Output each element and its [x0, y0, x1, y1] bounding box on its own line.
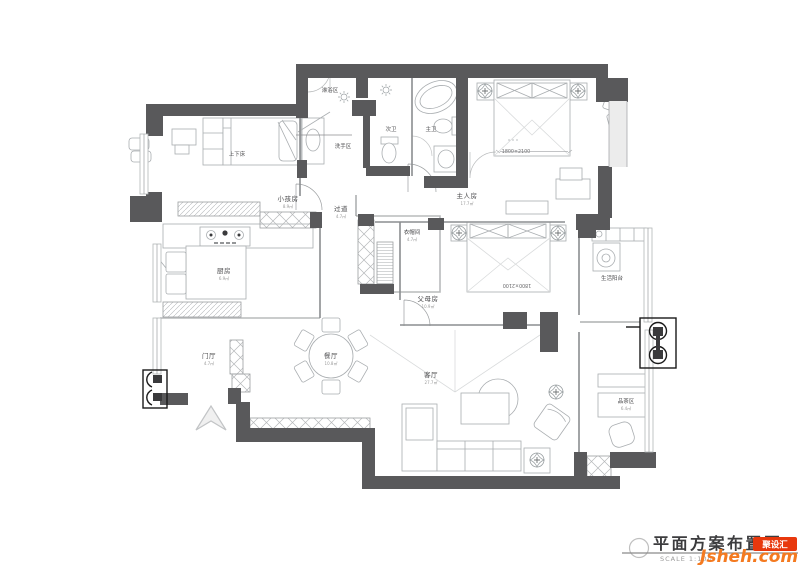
tea-chair	[607, 420, 636, 449]
wardrobe-closet	[358, 220, 374, 284]
corner-column	[587, 456, 611, 478]
bathtub	[410, 74, 463, 120]
room-label-dining: 餐厅	[324, 351, 338, 360]
room-area-tea: 6.4㎡	[621, 405, 631, 411]
coffee-table	[461, 393, 509, 424]
room-area-kidsroom: 8.9㎡	[283, 203, 293, 209]
room-label-shower: 淋浴区	[322, 86, 339, 94]
shoe-cabinet	[230, 340, 243, 374]
room-label-washarea: 洗手区	[335, 142, 352, 150]
tea-shelf	[598, 374, 648, 387]
room-area-corridor: 4.7㎡	[336, 213, 346, 219]
armchair	[533, 403, 572, 442]
room-label-masterbath: 主卫	[425, 125, 437, 133]
room-area-foyer: 4.7㎡	[204, 360, 214, 366]
room-label-masterbed: 主人房	[457, 191, 478, 200]
toilet-2	[382, 143, 396, 163]
room-label-tea: 品茶区	[618, 397, 635, 405]
tea-area-set	[598, 374, 650, 449]
furn-label-bunkbed: 上下床	[229, 150, 246, 158]
sofa	[437, 441, 521, 471]
room-area-kitchen: 6.9㎡	[219, 275, 229, 281]
fridge	[166, 252, 186, 272]
room-label-parents: 父母房	[418, 294, 439, 303]
logo-badge-text: 聚设汇	[761, 540, 788, 551]
shelf-closet	[377, 242, 393, 284]
dresser	[556, 179, 590, 199]
room-label-kidsroom: 小孩房	[278, 194, 299, 203]
bed-dimension-master: 1800×2100	[502, 149, 530, 155]
desk	[172, 129, 196, 145]
room-label-cloakroom: 衣帽间	[404, 228, 421, 236]
room-area-masterbed: 17.7㎡	[461, 200, 474, 206]
parents-room-set	[451, 222, 566, 292]
bed-dimension-parents: 1800×2100	[503, 282, 531, 288]
counter-cabinet	[260, 212, 316, 228]
room-area-cloakroom: 4.7㎡	[407, 236, 417, 242]
bay-window-seat	[609, 101, 627, 167]
toilet	[434, 119, 452, 133]
room-area-living: 27.7㎡	[425, 379, 438, 385]
title-circle	[630, 539, 649, 558]
room-label-living: 客厅	[424, 370, 438, 379]
room-label-balcony: 生活阳台	[601, 274, 624, 282]
room-area-dining: 10.8㎡	[325, 360, 338, 366]
tea-table	[598, 393, 650, 417]
bench	[506, 201, 548, 214]
lower-cabinet	[163, 302, 241, 317]
room-label-corridor: 过道	[334, 204, 348, 213]
basin-cabinet	[302, 118, 324, 164]
kitchen-island	[186, 246, 246, 299]
room-label-bath2: 次卫	[385, 125, 397, 133]
room-area-parents: 10.9㎡	[422, 303, 435, 309]
room-label-kitchen: 厨房	[217, 266, 231, 275]
room-label-foyer: 门厅	[202, 351, 216, 360]
floor-plan-page: 淋浴区 洗手区 次卫 主卫 上下床 小孩房 8.9㎡ 过道 4.7㎡ 主人房 1…	[0, 0, 800, 565]
entry-arrow	[196, 406, 226, 430]
wardrobe	[203, 118, 223, 165]
upper-cabinet	[178, 202, 260, 216]
chaise	[402, 404, 437, 471]
floor-plan-drawing: 淋浴区 洗手区 次卫 主卫 上下床 小孩房 8.9㎡ 过道 4.7㎡ 主人房 1…	[0, 0, 800, 565]
balcony-fixtures	[592, 228, 646, 271]
